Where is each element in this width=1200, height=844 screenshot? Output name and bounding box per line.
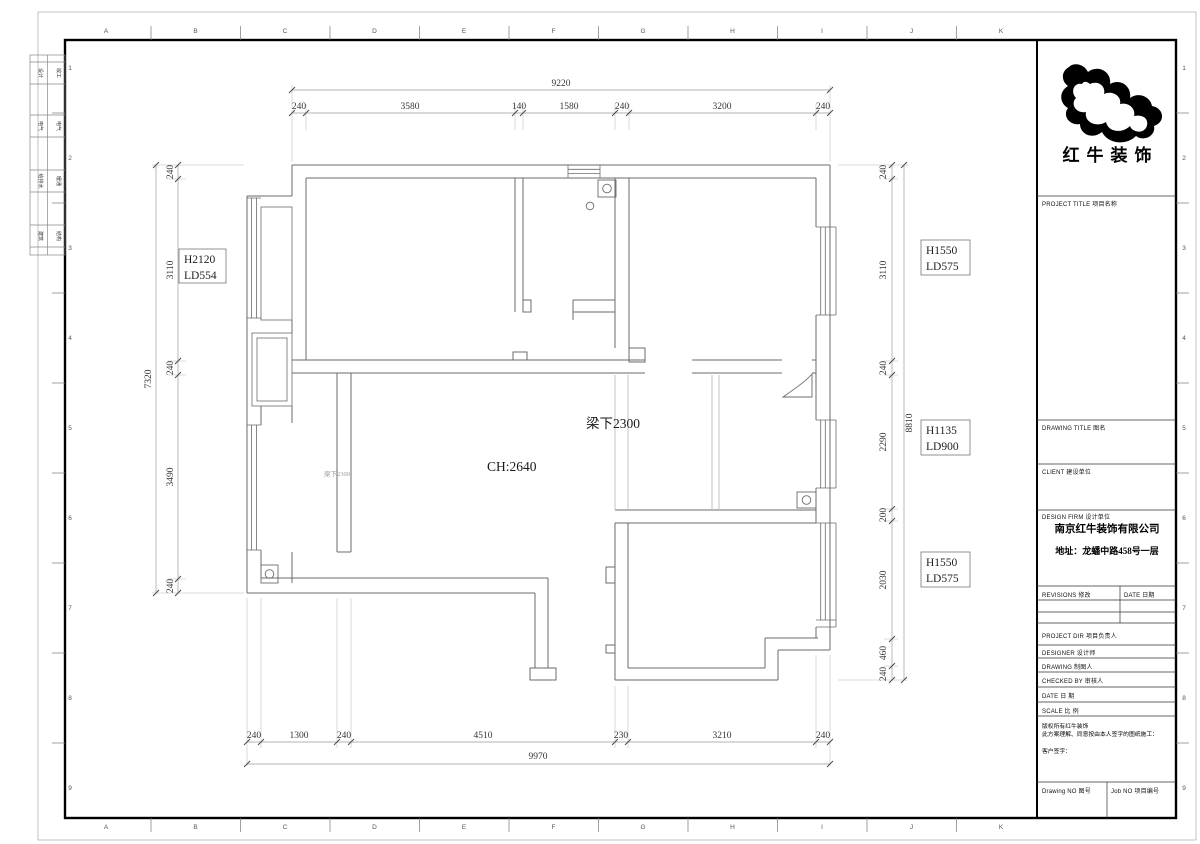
svg-text:H: H [730,824,735,831]
svg-text:8: 8 [1182,695,1186,702]
svg-text:240: 240 [247,731,262,741]
svg-text:3200: 3200 [713,102,732,112]
svg-text:J: J [910,824,913,831]
svg-text:B: B [193,824,197,831]
svg-text:G: G [640,28,645,35]
job-no-label: Job NO 项目编号 [1111,786,1159,795]
svg-text:4: 4 [1182,335,1186,342]
project-dir-label: PROJECT DIR 项目负责人 [1042,631,1117,640]
svg-text:7: 7 [68,605,72,612]
svg-text:2290: 2290 [879,432,889,451]
svg-text:240: 240 [292,102,307,112]
svg-text:I: I [821,824,823,831]
svg-text:240: 240 [816,102,831,112]
tag-text: LD575 [926,573,959,585]
svg-text:3580: 3580 [401,102,420,112]
svg-text:3210: 3210 [713,731,732,741]
svg-text:240: 240 [879,667,889,682]
svg-text:3110: 3110 [879,260,889,279]
drawing-title-label: DRAWING TITLE 图名 [1042,423,1106,432]
tag-text: LD554 [184,270,217,282]
svg-text:C: C [283,28,288,35]
svg-text:230: 230 [614,731,629,741]
svg-text:1: 1 [68,65,72,72]
designer-label: DESIGNER 设计师 [1042,648,1095,657]
dimension-lines [152,85,908,767]
svg-text:9220: 9220 [552,79,571,89]
redbull-logo-icon [1061,64,1162,142]
svg-text:3: 3 [1182,245,1186,252]
logo-text: 红牛装饰 [1040,141,1174,166]
svg-text:2: 2 [68,155,72,162]
svg-text:240: 240 [816,731,831,741]
svg-text:E: E [462,824,467,831]
svg-text:1580: 1580 [560,102,579,112]
dimension-text: 9220 240 3580 140 1580 240 3200 240 9970… [144,79,915,762]
strip-label: 给排水 [37,173,44,188]
svg-text:E: E [462,28,467,35]
svg-text:J: J [910,28,913,35]
strip-label: 电气 [37,121,44,131]
svg-text:3110: 3110 [166,260,176,279]
strip-label: 暖通 [55,176,62,186]
svg-text:3490: 3490 [166,467,176,486]
svg-text:460: 460 [879,646,889,661]
strip-label: 建筑 [37,231,44,241]
svg-text:8: 8 [68,695,72,702]
svg-text:K: K [999,824,1004,831]
svg-text:240: 240 [166,165,176,180]
strip-label: 电气 [55,121,62,131]
svg-text:H: H [730,28,735,35]
svg-text:240: 240 [337,731,352,741]
svg-text:D: D [372,28,377,35]
drawing-sheet: AABBCCDDEEFFGGHHIIJJKK112233445566778899… [0,0,1200,844]
firm-name: 南京红牛装饰有限公司 [1038,521,1176,536]
svg-text:6: 6 [1182,515,1186,522]
svg-text:1: 1 [1182,65,1186,72]
svg-text:200: 200 [879,508,889,523]
svg-text:240: 240 [615,102,630,112]
strip-label: 结构 [55,231,62,241]
drain-icon [586,202,594,210]
signature-label: 客户签字： [1042,746,1174,755]
client-label: CLIENT 建设单位 [1042,467,1091,476]
svg-text:240: 240 [879,165,889,180]
strip-label: 设计 [37,68,44,78]
svg-text:2030: 2030 [879,570,889,589]
tag-text: LD575 [926,261,959,273]
svg-text:4510: 4510 [474,731,493,741]
svg-text:6: 6 [68,515,72,522]
svg-text:B: B [193,28,197,35]
walls [247,165,830,680]
svg-text:9: 9 [1182,785,1186,792]
checked-by-label: CHECKED BY 审核人 [1042,676,1103,685]
date-row-label: DATE 日 期 [1042,691,1075,700]
beam-height-label: 梁下2300 [586,416,640,431]
svg-text:240: 240 [166,361,176,376]
svg-text:G: G [640,824,645,831]
svg-text:I: I [821,28,823,35]
windows [247,165,836,627]
svg-text:F: F [552,28,556,35]
beam-lines [615,375,719,510]
floor-plan-canvas: AABBCCDDEEFFGGHHIIJJKK112233445566778899… [0,0,1200,844]
date-header: DATE 日期 [1124,590,1155,599]
scale-row-label: SCALE 比 例 [1042,706,1079,715]
svg-text:2: 2 [1182,155,1186,162]
svg-text:A: A [104,28,109,35]
revisions-header: REVISIONS 修改 [1042,590,1091,599]
tag-text: LD900 [926,441,959,453]
svg-text:A: A [104,824,109,831]
svg-text:7320: 7320 [144,369,154,388]
svg-text:7: 7 [1182,605,1186,612]
opening-tags: H2120 LD554 H1550 LD575 H1135 LD900 H155… [179,240,970,587]
tag-text: H1550 [926,557,958,569]
firm-address: 地址：龙蟠中路458号一层 [1038,544,1176,557]
ceiling-height-label: CH:2640 [487,459,537,474]
door-leaf-icon [783,374,812,397]
svg-text:K: K [999,28,1004,35]
tag-text: H1135 [926,425,957,437]
project-title-label: PROJECT TITLE 项目名称 [1042,199,1117,208]
copyright-line2: 此方案理解、同意按由本人签字的图纸施工： [1042,729,1174,738]
svg-text:5: 5 [68,425,72,432]
svg-text:C: C [283,824,288,831]
room-annotations: 梁下2300 CH:2640 梁下2300 [324,416,640,478]
svg-text:4: 4 [68,335,72,342]
svg-text:240: 240 [879,361,889,376]
margin-strip: 设计 竣工 电气 电气 给排水 暖通 建筑 结构 [30,55,65,255]
svg-text:240: 240 [166,579,176,594]
svg-text:D: D [372,824,377,831]
svg-text:9970: 9970 [529,752,548,762]
svg-text:1300: 1300 [290,731,309,741]
drawing-no-label: Drawing NO 图号 [1042,786,1091,795]
drawing-label: DRAWING 制图人 [1042,662,1093,671]
svg-text:3: 3 [68,245,72,252]
tag-text: H2120 [184,254,216,266]
design-firm-label: DESIGN FIRM 设计单位 [1042,512,1110,521]
svg-text:5: 5 [1182,425,1186,432]
svg-text:8810: 8810 [905,413,915,432]
svg-text:F: F [552,824,556,831]
tag-text: H1550 [926,245,958,257]
strip-label: 竣工 [55,68,62,78]
beam-height-small-label: 梁下2300 [324,469,350,478]
svg-text:9: 9 [68,785,72,792]
svg-text:140: 140 [512,102,527,112]
